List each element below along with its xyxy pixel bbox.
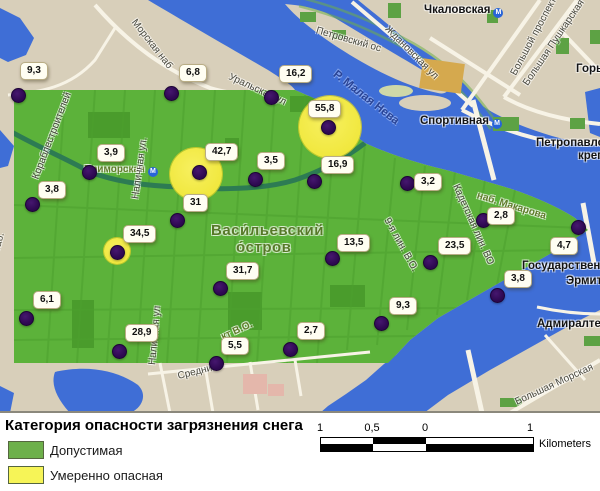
sample-point-dot: [25, 197, 40, 212]
sample-value-label: 42,7: [205, 143, 238, 161]
snow-pollution-map-app: Морская набЧкаловскаяМПетровский осЖдано…: [0, 0, 600, 491]
scale-bar-segments: [320, 437, 534, 452]
sample-value-label: 2,7: [297, 322, 325, 340]
street-label-text: Петропавловская: [536, 137, 600, 149]
building-block: [243, 374, 267, 394]
sample-point-dot: [110, 245, 125, 260]
legend-swatch: [8, 466, 44, 484]
sample-value-label: 23,5: [438, 237, 471, 255]
scale-unit: Kilometers: [539, 438, 591, 450]
sample-value-label: 3,8: [38, 181, 66, 199]
sample-value-label: 31: [183, 194, 208, 212]
park-patch: [300, 12, 316, 22]
sample-value-label: 16,2: [279, 65, 312, 83]
sample-point-dot: [571, 220, 586, 235]
sample-value-label: 34,5: [123, 225, 156, 243]
scale-tick-label: 1: [317, 422, 323, 434]
sample-point-dot: [321, 120, 336, 135]
scale-tick-label: 1: [527, 422, 533, 434]
sample-point-dot: [283, 342, 298, 357]
street-label-text: Государственный: [522, 260, 600, 272]
sample-value-label: 5,5: [221, 337, 249, 355]
islet: [379, 85, 413, 97]
street-label: Васи́льевский: [211, 223, 324, 238]
sample-point-dot: [82, 165, 97, 180]
sample-point-dot: [19, 311, 34, 326]
street-label: Государственный: [522, 261, 600, 273]
sample-point-dot: [490, 288, 505, 303]
street-label: Адмиралтейский: [537, 319, 600, 331]
legend-panel: Категория опасности загрязнения снега До…: [0, 413, 600, 491]
street-label-text: Спортивная: [420, 115, 489, 127]
street-label: СпортивнаяМ: [420, 116, 502, 129]
sample-value-label: 6,8: [179, 64, 207, 82]
sample-point-dot: [374, 316, 389, 331]
legend-item-label: Допустимая: [50, 443, 123, 458]
street-label: Эрмитаж: [566, 276, 600, 288]
sample-point-dot: [213, 281, 228, 296]
legend-item-label: Умеренно опасная: [50, 468, 163, 483]
sample-value-label: 9,3: [389, 297, 417, 315]
sample-point-dot: [112, 344, 127, 359]
sample-point-dot: [264, 90, 279, 105]
sample-value-label: 3,5: [257, 152, 285, 170]
building-block: [268, 384, 284, 396]
street-label: крепость: [578, 151, 600, 163]
sample-point-dot: [192, 165, 207, 180]
sample-value-label: 4,7: [550, 237, 578, 255]
street-label-text: о́стров: [236, 239, 291, 256]
metro-icon: М: [493, 8, 503, 18]
sample-value-label: 6,1: [33, 291, 61, 309]
sample-point-dot: [400, 176, 415, 191]
sample-value-label: 28,9: [125, 324, 158, 342]
sample-value-label: 9,3: [20, 62, 48, 80]
street-label: Горьковская: [576, 64, 600, 76]
sample-point-dot: [248, 172, 263, 187]
sample-point-dot: [209, 356, 224, 371]
legend-title: Категория опасности загрязнения снега: [5, 417, 303, 434]
street-label: о́стров: [236, 240, 291, 255]
sample-value-label: 55,8: [308, 100, 341, 118]
map-canvas[interactable]: Морская набЧкаловскаяМПетровский осЖдано…: [0, 0, 600, 413]
street-label-text: Чкаловская: [424, 4, 490, 16]
metro-icon: М: [492, 119, 502, 129]
street-label-text: Эрмитаж: [566, 275, 600, 287]
islet: [399, 95, 451, 111]
sample-value-label: 3,2: [414, 173, 442, 191]
sample-point-dot: [164, 86, 179, 101]
street-label: ЧкаловскаяМ: [424, 5, 503, 18]
sample-value-label: 13,5: [337, 234, 370, 252]
street-label-text: крепость: [578, 150, 600, 162]
sample-value-label: 2,8: [487, 207, 515, 225]
sample-point-dot: [307, 174, 322, 189]
scale-tick-label: 0: [422, 422, 428, 434]
street-label-text: Васи́льевский: [211, 222, 324, 239]
scale-tick-label: 0,5: [364, 422, 379, 434]
street-label-text: Адмиралтейский: [537, 318, 600, 330]
street-label: Петропавловская: [536, 138, 600, 150]
sample-value-label: 16,9: [321, 156, 354, 174]
sample-point-dot: [11, 88, 26, 103]
sample-point-dot: [170, 213, 185, 228]
metro-icon: М: [148, 167, 158, 177]
sample-value-label: 3,8: [504, 270, 532, 288]
legend-swatch: [8, 441, 44, 459]
street-label-text: Горьковская: [576, 63, 600, 75]
sample-value-label: 31,7: [226, 262, 259, 280]
sample-point-dot: [325, 251, 340, 266]
sample-value-label: 3,9: [97, 144, 125, 162]
sample-point-dot: [423, 255, 438, 270]
